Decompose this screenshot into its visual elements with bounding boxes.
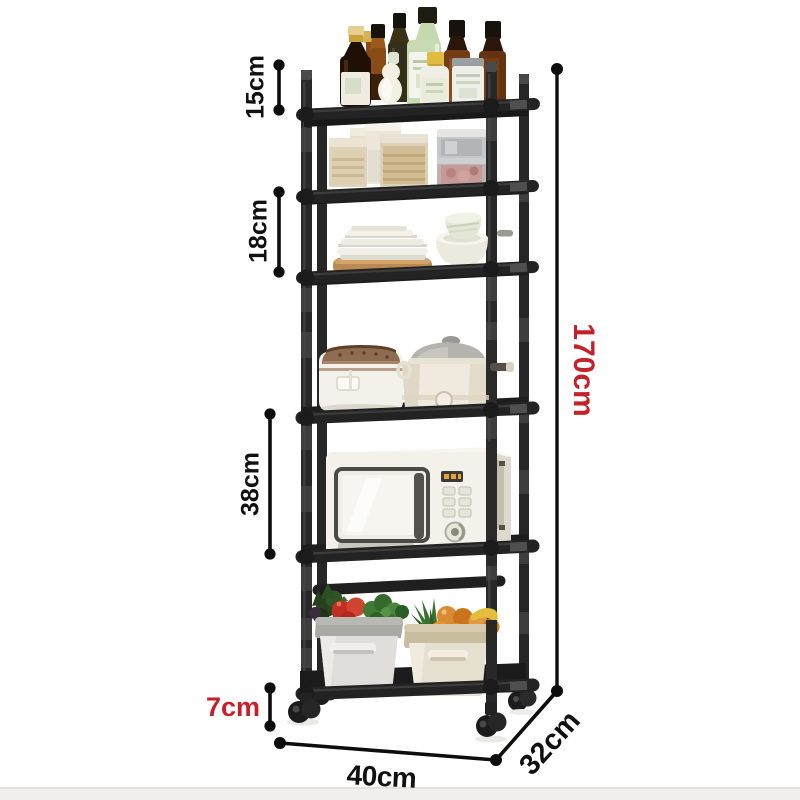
svg-text:38cm: 38cm <box>237 452 265 516</box>
svg-text:170cm: 170cm <box>567 323 600 416</box>
svg-text:15cm: 15cm <box>242 55 270 119</box>
svg-text:7cm: 7cm <box>206 692 260 722</box>
svg-text:40cm: 40cm <box>346 759 417 794</box>
svg-text:18cm: 18cm <box>245 199 273 263</box>
